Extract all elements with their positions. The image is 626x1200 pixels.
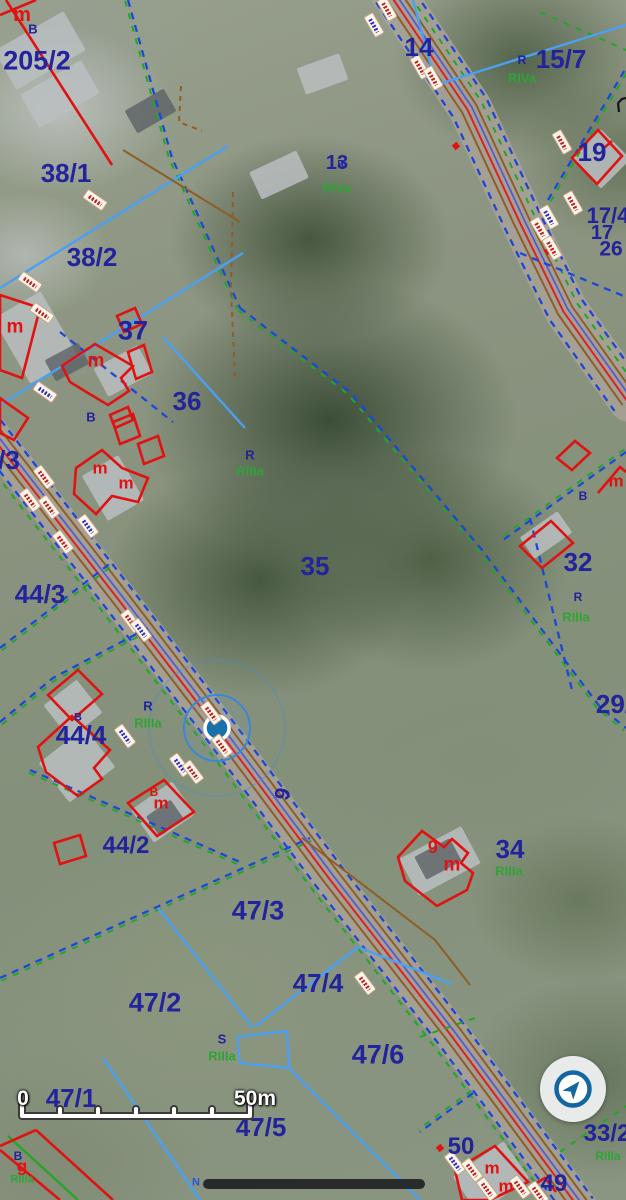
navigation-arrow-icon [550,1066,596,1112]
compass-button[interactable] [540,1056,606,1122]
aerial-imagery[interactable] [0,0,626,1200]
map-app-screen: 205/2mB38/138/237mm36Bmm/344/335RRIIIa13… [0,0,626,1200]
home-indicator-bar[interactable] [203,1179,425,1189]
